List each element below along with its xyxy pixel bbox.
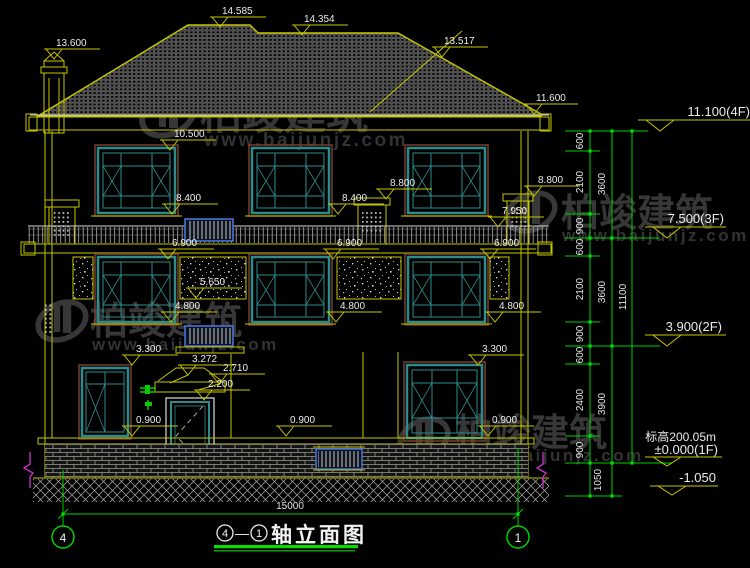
dim-600-c: 600 [575, 346, 586, 363]
dim-3900: 3900 [597, 392, 608, 415]
svg-text:6.900: 6.900 [337, 238, 362, 249]
svg-text:0.900: 0.900 [290, 415, 315, 426]
dim-3600-a: 3600 [597, 172, 608, 195]
dim-600-a: 600 [575, 132, 586, 149]
drawing-canvas: 柏竣建筑 www.baijunjz.com 柏竣建筑 www.baijunjz.… [0, 0, 750, 568]
title-underline-thick [214, 545, 358, 548]
svg-text:±0.000(1F): ±0.000(1F) [655, 442, 719, 457]
svg-text:13.600: 13.600 [56, 38, 87, 49]
dim-15000: 15000 [276, 501, 304, 512]
dim-600-b: 600 [575, 238, 586, 255]
svg-text:1: 1 [515, 531, 522, 545]
svg-text:4: 4 [60, 531, 67, 545]
svg-text:0.900: 0.900 [492, 415, 517, 426]
drawing-title: 轴立面图 [271, 523, 367, 547]
svg-text:13.517: 13.517 [444, 36, 475, 47]
svg-text:8.400: 8.400 [176, 193, 201, 204]
svg-text:4.800: 4.800 [499, 301, 524, 312]
ground-hatch [33, 479, 549, 502]
svg-text:-1.050: -1.050 [679, 470, 716, 485]
title-separator: — [235, 525, 249, 541]
svg-text:2.200: 2.200 [208, 379, 233, 390]
plinth-grille [313, 447, 365, 470]
dim-2100-a: 2100 [575, 170, 586, 193]
svg-text:3.272: 3.272 [192, 354, 217, 365]
dim-2100-b: 2100 [575, 277, 586, 300]
svg-text:10.500: 10.500 [174, 129, 205, 140]
svg-text:4.800: 4.800 [340, 301, 365, 312]
pilaster-vent-grid [45, 303, 53, 333]
title-axis-start: 4 [222, 528, 228, 540]
svg-text:2.710: 2.710 [223, 363, 248, 374]
svg-text:6.900: 6.900 [172, 238, 197, 249]
dim-2400: 2400 [575, 388, 586, 411]
title-block: 4 — 1 轴立面图 [214, 523, 367, 552]
dim-1050: 1050 [593, 468, 604, 491]
svg-text:8.400: 8.400 [342, 193, 367, 204]
dim-900-a: 900 [575, 217, 586, 234]
svg-text:8.800: 8.800 [538, 175, 563, 186]
svg-text:0.900: 0.900 [136, 415, 161, 426]
svg-text:11.100(4F): 11.100(4F) [687, 104, 750, 119]
dim-900-c: 900 [575, 441, 586, 458]
dim-900-b: 900 [575, 325, 586, 342]
svg-text:14.585: 14.585 [222, 6, 253, 17]
title-underline-thin [214, 550, 355, 552]
svg-text:7.500(3F): 7.500(3F) [668, 211, 724, 226]
svg-text:3.300: 3.300 [482, 344, 507, 355]
brick-plinth [33, 444, 549, 478]
svg-text:3.900(2F): 3.900(2F) [666, 319, 722, 334]
svg-text:11.600: 11.600 [536, 93, 566, 104]
dim-11100: 11100 [618, 283, 629, 310]
cad-elevation-drawing: 柏竣建筑 www.baijunjz.com 柏竣建筑 www.baijunjz.… [0, 0, 750, 568]
svg-text:4.800: 4.800 [175, 301, 200, 312]
svg-text:7.950: 7.950 [502, 206, 527, 217]
svg-text:8.800: 8.800 [390, 178, 415, 189]
svg-text:5.650: 5.650 [200, 277, 225, 288]
title-axis-end: 1 [256, 528, 262, 540]
dim-3600-b: 3600 [597, 280, 608, 303]
svg-text:14.354: 14.354 [304, 14, 335, 25]
svg-text:6.900: 6.900 [494, 238, 519, 249]
svg-text:3.300: 3.300 [136, 344, 161, 355]
